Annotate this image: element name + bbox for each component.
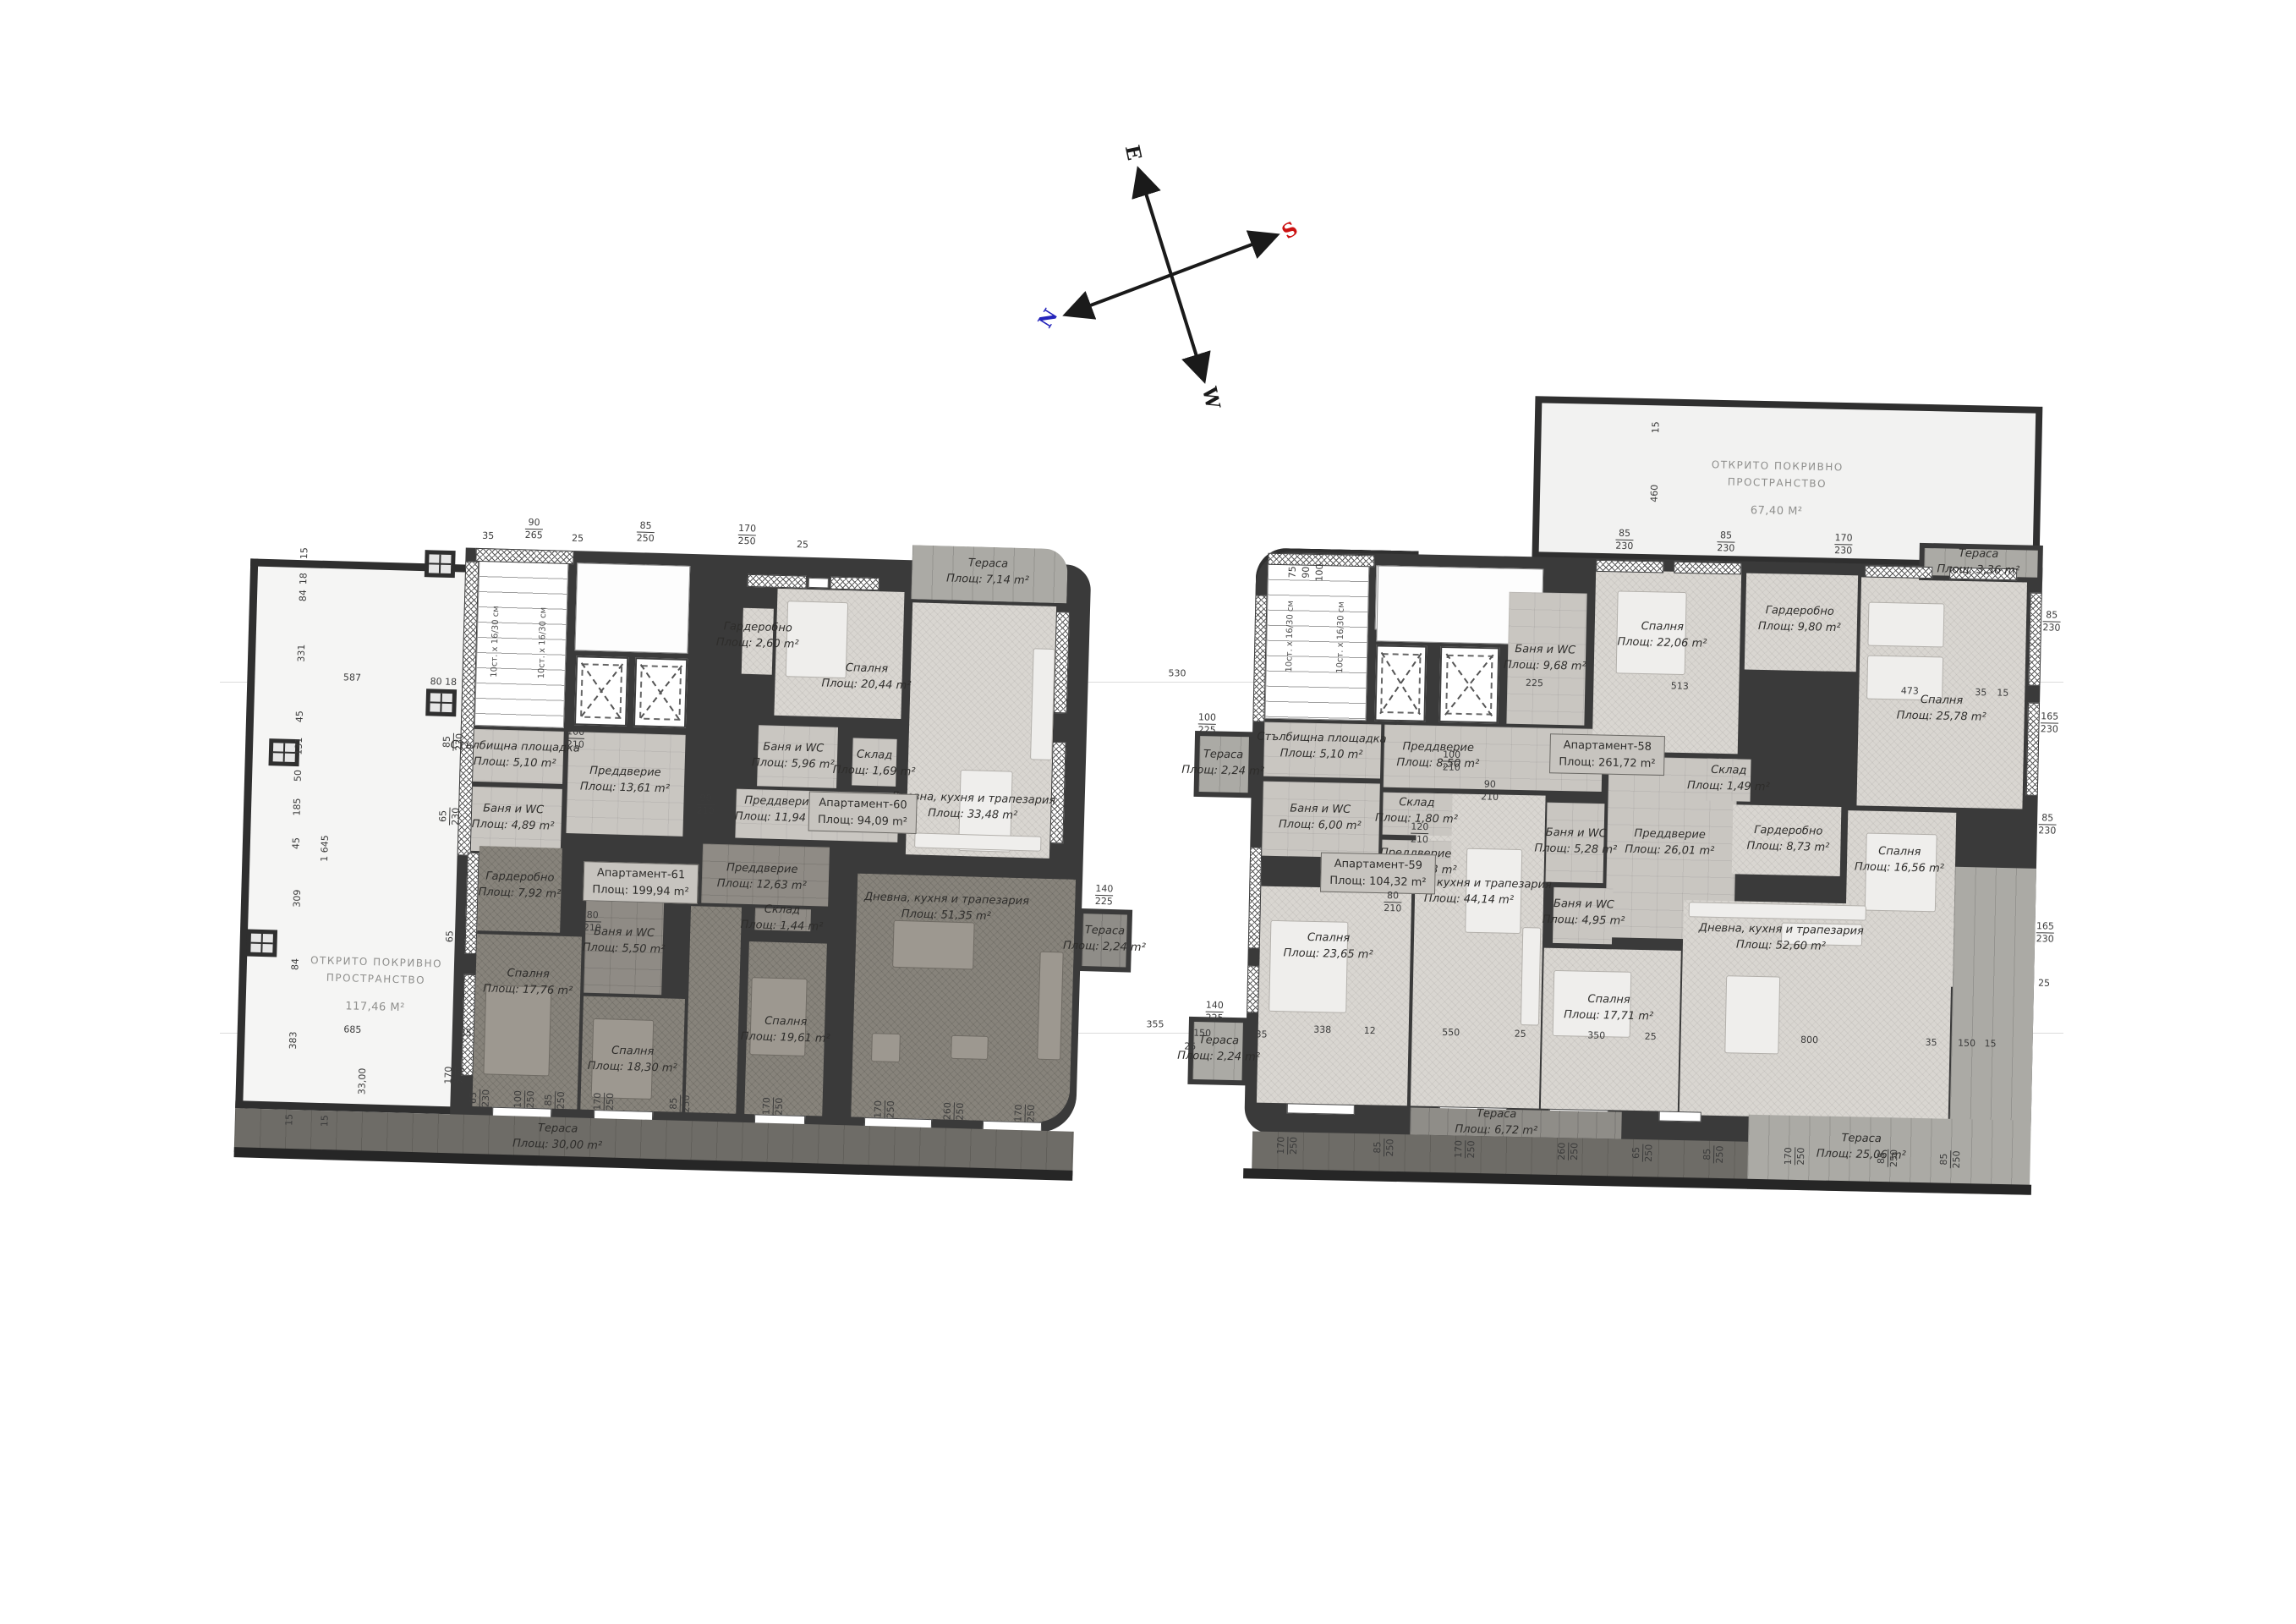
room-area: Площ: 7,14 m² bbox=[946, 571, 1029, 590]
dimension-label: 85230 bbox=[1717, 530, 1735, 554]
dimension-label: 185 bbox=[293, 798, 304, 815]
dimension-label: 170250 bbox=[1276, 1137, 1300, 1155]
room-area: Площ: 5,50 m² bbox=[582, 941, 665, 959]
dimension-bottom: 250 bbox=[1465, 1140, 1477, 1158]
dimension-top: 85 bbox=[639, 520, 651, 531]
dimension-top: 85 bbox=[1372, 1141, 1383, 1153]
dimension-label: 85230 bbox=[2042, 610, 2061, 634]
dimension-top: 80 bbox=[587, 909, 599, 920]
dimension-label: 165230 bbox=[2036, 921, 2055, 945]
dimension-bottom: 265 bbox=[525, 528, 543, 540]
dimension-label: 331 bbox=[297, 644, 308, 661]
room-label: СкладПлощ: 1,44 m² bbox=[740, 902, 824, 935]
dimension-top: 90 bbox=[528, 517, 540, 528]
room-area: Площ: 5,10 m² bbox=[1257, 745, 1387, 764]
apartment-number: Апартамент-58 bbox=[1559, 737, 1657, 755]
room-label: СпалняПлощ: 16,56 m² bbox=[1855, 843, 1945, 877]
room-area: Площ: 8,73 m² bbox=[1746, 839, 1829, 857]
insulated-wall bbox=[475, 548, 573, 564]
room-name: Склад bbox=[1687, 762, 1770, 780]
insulated-wall bbox=[2026, 703, 2040, 796]
apartment-area: Площ: 199,94 m² bbox=[592, 881, 689, 901]
room-label: ТерасаПлощ: 6,72 m² bbox=[1455, 1106, 1538, 1140]
room-label: Стълбищна площадкаПлощ: 5,10 m² bbox=[450, 738, 580, 773]
room-label: Баня и WCПлощ: 9,68 m² bbox=[1504, 642, 1587, 676]
dimension-label: 140225 bbox=[1095, 884, 1114, 908]
elevator-x-symbol bbox=[635, 659, 686, 727]
dimension-label: 84 bbox=[290, 958, 301, 970]
dimension-top: 85 bbox=[1938, 1153, 1949, 1165]
dimension-label: 85250 bbox=[1877, 1149, 1900, 1167]
dimension-label: 85250 bbox=[544, 1091, 567, 1110]
dimension-bottom: 230 bbox=[449, 808, 462, 826]
room-name: Спалня bbox=[1618, 619, 1707, 637]
room-label: Дневна, кухня и трапезарияПлощ: 52,60 m² bbox=[1698, 921, 1864, 957]
room-label: ТерасаПлощ: 2,24 m² bbox=[1181, 747, 1265, 781]
room-area: Площ: 1,44 m² bbox=[740, 918, 823, 936]
room-area: Площ: 5,96 m² bbox=[752, 755, 835, 774]
dimension-bottom: 250 bbox=[1384, 1138, 1396, 1156]
room-area: Площ: 18,30 m² bbox=[587, 1059, 677, 1078]
dimension-top: 170 bbox=[1453, 1140, 1464, 1158]
dimension-label: 12 bbox=[1364, 1026, 1376, 1037]
room-area: Площ: 6,00 m² bbox=[1279, 817, 1362, 835]
dimension-label: 35 bbox=[460, 1028, 472, 1039]
dimension-top: 85 bbox=[441, 736, 452, 748]
dimension-bottom: 230 bbox=[454, 1067, 467, 1084]
dimension-top: 85 bbox=[1619, 528, 1630, 539]
dimension-label: 15 bbox=[284, 1114, 295, 1126]
dimension-top: 85 bbox=[1720, 529, 1732, 540]
dimension-bottom: 230 bbox=[452, 733, 465, 751]
room-area: Площ: 2,24 m² bbox=[1181, 763, 1264, 781]
dimension-bottom: 210 bbox=[1481, 790, 1499, 803]
dimension-label: 85230 bbox=[2038, 813, 2057, 837]
dimension-label: 25 bbox=[797, 540, 808, 551]
window bbox=[1287, 1103, 1355, 1115]
room-name: Баня и WC bbox=[1279, 801, 1362, 819]
dimension-label: 170250 bbox=[737, 524, 756, 547]
dimension-label: 170250 bbox=[593, 1092, 616, 1111]
dimension-bottom: 210 bbox=[1384, 902, 1401, 914]
open-space-label: Открито покривно пространство117,46 m² bbox=[303, 952, 448, 1019]
dining-table bbox=[892, 920, 975, 970]
room-label: ТерасаПлощ: 3,36 m² bbox=[1937, 546, 2020, 579]
dimension-top: 170 bbox=[738, 523, 756, 535]
dimension-label: 800 bbox=[1800, 1035, 1818, 1046]
insulated-wall bbox=[1674, 562, 1741, 575]
dimension-label: 1 645 bbox=[320, 835, 332, 862]
elevator-x-symbol bbox=[1440, 648, 1498, 721]
gap-dimension-top: 530 bbox=[1169, 669, 1186, 680]
room-label: Баня и WCПлощ: 4,95 m² bbox=[1542, 897, 1625, 930]
dimension-bottom: 250 bbox=[1887, 1149, 1899, 1167]
dimension-top: 65 bbox=[1630, 1147, 1641, 1159]
open-space-area: 67,40 m² bbox=[1704, 501, 1848, 523]
room-area: Площ: 1,49 m² bbox=[1687, 778, 1770, 796]
elevator-shaft bbox=[1438, 646, 1499, 723]
apartment-number: Апартамент-59 bbox=[1330, 856, 1427, 875]
dimension-label: 170230 bbox=[1834, 533, 1853, 557]
dimension-top: 260 bbox=[1556, 1143, 1567, 1160]
room-area: Площ: 17,71 m² bbox=[1564, 1007, 1653, 1025]
room-label: Баня и WCПлощ: 4,89 m² bbox=[471, 801, 555, 835]
room-area: Площ: 12,63 m² bbox=[717, 876, 808, 895]
room-area: Площ: 2,60 m² bbox=[716, 635, 799, 654]
dimension-bottom: 250 bbox=[1568, 1143, 1581, 1160]
dimension-bottom: 210 bbox=[1443, 760, 1460, 773]
room-area: Площ: 2,24 m² bbox=[1063, 938, 1146, 957]
dimension-label: 170230 bbox=[443, 1067, 467, 1085]
elevator-shaft bbox=[574, 656, 628, 727]
room-name: Тераса bbox=[1455, 1106, 1538, 1124]
dimension-label: 90210 bbox=[697, 793, 715, 817]
open-space-name: Открито покривно пространство bbox=[1712, 458, 1844, 490]
room-name: Склад bbox=[1375, 795, 1458, 813]
room-label: СпалняПлощ: 20,44 m² bbox=[821, 660, 912, 694]
elevator-x-symbol bbox=[576, 657, 627, 725]
dimension-label: 170250 bbox=[1013, 1104, 1037, 1122]
dimension-bottom: 230 bbox=[1717, 541, 1734, 554]
dimension-bottom: 250 bbox=[1949, 1150, 1962, 1168]
dimension-bottom: 250 bbox=[772, 1097, 785, 1115]
dimension-label: 460 bbox=[1650, 485, 1661, 502]
room-label: СпалняПлощ: 19,61 m² bbox=[740, 1013, 830, 1048]
room-name: Преддверие bbox=[1397, 739, 1480, 757]
room-label: Баня и WCПлощ: 5,28 m² bbox=[1534, 826, 1618, 859]
room-area: Площ: 19,61 m² bbox=[740, 1029, 830, 1048]
insulated-wall bbox=[2028, 593, 2041, 686]
dimension-bottom: 230 bbox=[479, 1089, 491, 1107]
room-label: СпалняПлощ: 17,71 m² bbox=[1564, 991, 1654, 1025]
apartment-area: Площ: 104,32 m² bbox=[1329, 872, 1427, 891]
dimension-bottom: 210 bbox=[1411, 832, 1428, 845]
open-space-name: Открито покривно пространство bbox=[310, 954, 442, 986]
stair-flight-text: 10ст. x 16/30 см bbox=[1285, 601, 1296, 672]
room-label: СпалняПлощ: 23,65 m² bbox=[1283, 930, 1373, 963]
room-name: Тераса bbox=[1181, 747, 1264, 765]
dimension-bottom: 225 bbox=[1095, 894, 1113, 907]
room-name: Стълбищна площадка bbox=[1257, 730, 1387, 749]
dimension-label: 170250 bbox=[1454, 1140, 1477, 1159]
insulated-wall bbox=[1596, 560, 1663, 573]
compass: E S N W bbox=[1044, 148, 1298, 402]
room-label: СпалняПлощ: 25,78 m² bbox=[1896, 692, 1986, 726]
dimension-label: 45 bbox=[295, 710, 306, 722]
room-area: Площ: 25,78 m² bbox=[1896, 708, 1986, 726]
page: { "compass": { "labels": {"e": "E", "s":… bbox=[0, 0, 2296, 1624]
stair-flight-text: 10ст. x 16/30 см bbox=[490, 606, 501, 678]
dimension-bottom: 230 bbox=[1615, 539, 1633, 551]
room-area: Площ: 5,28 m² bbox=[1534, 841, 1617, 859]
dimension-top: 170 bbox=[1012, 1104, 1024, 1122]
room-label: СпалняПлощ: 17,76 m² bbox=[483, 965, 573, 1000]
dimension-top: 140 bbox=[1206, 1000, 1224, 1011]
dimension-top: 140 bbox=[1095, 883, 1113, 895]
dimension-label: 15 bbox=[1984, 1039, 1996, 1050]
dimension-label: 90210 bbox=[1481, 779, 1499, 803]
room-area: Площ: 3,36 m² bbox=[1937, 562, 2019, 579]
dimension-bottom: 230 bbox=[1834, 544, 1852, 557]
dimension-top: 65 bbox=[444, 930, 455, 942]
apartment-tag: Апартамент-59Площ: 104,32 m² bbox=[1320, 853, 1436, 895]
room-area: Площ: 23,65 m² bbox=[1283, 946, 1373, 963]
room-label: Стълбищна площадкаПлощ: 5,10 m² bbox=[1257, 730, 1387, 765]
dimension-bottom: 230 bbox=[2036, 932, 2054, 945]
elevator-shaft bbox=[1374, 645, 1427, 721]
room-name: Гардеробно bbox=[716, 619, 799, 638]
dimension-label: 75 bbox=[1288, 566, 1299, 578]
dimension-top: 170 bbox=[1834, 532, 1852, 543]
dimension-label: 260250 bbox=[942, 1102, 966, 1121]
insulated-wall bbox=[1248, 847, 1263, 948]
room-label: ПреддвериеПлощ: 13,61 m² bbox=[580, 764, 671, 798]
dimension-bottom: 250 bbox=[1287, 1137, 1300, 1155]
apartment-tag: Апартамент-60Площ: 94,09 m² bbox=[808, 791, 918, 834]
dimension-bottom: 250 bbox=[603, 1093, 616, 1111]
room-area: Площ: 13,61 m² bbox=[580, 779, 671, 798]
apartment-tag: Апартамент-58Площ: 261,72 m² bbox=[1549, 733, 1665, 776]
dimension-bottom: 210 bbox=[567, 738, 584, 750]
dimension-label: 260250 bbox=[1557, 1143, 1581, 1161]
dimension-label: 473 bbox=[1901, 686, 1919, 697]
skylight-symbol bbox=[425, 550, 456, 578]
apartment-number: Апартамент-60 bbox=[818, 795, 908, 814]
room-area: Площ: 4,95 m² bbox=[1542, 913, 1625, 930]
room-area: Площ: 9,68 m² bbox=[1504, 658, 1586, 676]
apartment-number: Апартамент-61 bbox=[593, 864, 690, 884]
room-label: СкладПлощ: 1,69 m² bbox=[832, 747, 916, 781]
dimension-bottom: 250 bbox=[636, 531, 654, 544]
dimension-top: 85 bbox=[1876, 1152, 1887, 1164]
dimension-label: 35 bbox=[1975, 688, 1986, 699]
dimension-label: 100225 bbox=[1198, 712, 1217, 736]
coffee-table bbox=[951, 1035, 989, 1060]
dimension-top: 260 bbox=[941, 1102, 953, 1120]
elevator-x-symbol bbox=[1376, 646, 1425, 720]
dimension-bottom: 250 bbox=[737, 535, 755, 547]
apartment-area: Площ: 94,09 m² bbox=[818, 811, 908, 830]
room-name: Тераса bbox=[1937, 546, 2020, 563]
room-name: Баня и WC bbox=[1535, 826, 1618, 843]
dimension-label: 85230 bbox=[441, 732, 465, 751]
room-label: ПреддвериеПлощ: 26,01 m² bbox=[1625, 826, 1715, 860]
dimension-top: 170 bbox=[442, 1067, 454, 1084]
armchair bbox=[871, 1033, 901, 1062]
dimension-label: 85250 bbox=[669, 1095, 693, 1113]
dimension-label: 170250 bbox=[762, 1097, 786, 1116]
room-label: СпалняПлощ: 18,30 m² bbox=[587, 1043, 677, 1078]
insulated-wall bbox=[1054, 612, 1070, 713]
skylight-symbol bbox=[425, 689, 457, 716]
room-label: ПреддвериеПлощ: 12,63 m² bbox=[717, 860, 808, 895]
dimension-label: 85250 bbox=[1702, 1145, 1726, 1164]
room-name: Баня и WC bbox=[1504, 642, 1586, 660]
dimension-top: 165 bbox=[2041, 710, 2058, 721]
room-label: ТерасаПлощ: 30,00 m² bbox=[512, 1121, 603, 1155]
dimension-label: 50 bbox=[293, 770, 304, 782]
dimension-label: 150 bbox=[1193, 1029, 1211, 1040]
dimension-label: 65250 bbox=[1631, 1144, 1655, 1162]
room-area: Площ: 9,80 m² bbox=[1758, 619, 1841, 637]
dimension-top: 165 bbox=[2036, 920, 2054, 931]
room-area: Площ: 22,06 m² bbox=[1617, 634, 1707, 652]
dimension-label: 35 bbox=[482, 531, 494, 542]
room-area: Площ: 4,89 m² bbox=[471, 817, 554, 836]
dimension-bottom: 225 bbox=[1198, 723, 1216, 736]
dimension-label: 100210 bbox=[1443, 749, 1461, 773]
dimension-label: 90265 bbox=[525, 518, 544, 541]
dimension-label: 15 bbox=[1651, 421, 1662, 433]
apartment-tag: Апартамент-61Площ: 199,94 m² bbox=[583, 861, 699, 904]
dimension-label: 25 bbox=[1645, 1032, 1657, 1043]
window-panes bbox=[250, 934, 273, 953]
window bbox=[1659, 1111, 1701, 1122]
dimension-bottom: 250 bbox=[1795, 1147, 1807, 1165]
dimension-top: 85 bbox=[2046, 609, 2058, 620]
dimension-label: 45 bbox=[291, 837, 302, 849]
dimension-bottom: 230 bbox=[2042, 621, 2060, 634]
dimension-label: 25 bbox=[1515, 1029, 1526, 1040]
dimension-label: 150 bbox=[1958, 1039, 1975, 1050]
window bbox=[808, 578, 829, 589]
dimension-top: 90 bbox=[1484, 778, 1496, 789]
dimension-bottom: 250 bbox=[1642, 1144, 1655, 1162]
dimension-bottom: 230 bbox=[456, 928, 469, 946]
dimension-bottom: 250 bbox=[554, 1091, 567, 1109]
dimension-top: 85 bbox=[668, 1097, 679, 1109]
dimension-bottom: 250 bbox=[523, 1090, 536, 1108]
room-name: Спалня bbox=[1284, 930, 1373, 947]
dimension-top: 90 bbox=[699, 793, 711, 804]
dimension-label: 80 18 bbox=[430, 677, 457, 689]
window-panes bbox=[429, 554, 452, 573]
room-name: Тераса bbox=[1817, 1131, 1906, 1149]
window-panes bbox=[430, 693, 452, 712]
stair-core bbox=[474, 560, 568, 728]
dimension-label: 80210 bbox=[584, 910, 602, 934]
dimension-top: 85 bbox=[1701, 1149, 1712, 1160]
dimension-top: 100 bbox=[567, 726, 584, 738]
dimension-top: 65 bbox=[437, 810, 448, 822]
dimension-bottom: 250 bbox=[953, 1102, 966, 1120]
dimension-top: 80 bbox=[1387, 890, 1399, 901]
dimension-bottom: 230 bbox=[2038, 824, 2056, 837]
dimension-label: 338 bbox=[1313, 1025, 1331, 1036]
dimension-top: 170 bbox=[873, 1100, 885, 1118]
room-name: Спалня bbox=[1855, 843, 1944, 861]
room-label: ТерасаПлощ: 7,14 m² bbox=[946, 556, 1030, 590]
room-label: ГардеробноПлощ: 7,92 m² bbox=[478, 869, 562, 903]
room-area: Площ: 30,00 m² bbox=[512, 1136, 603, 1155]
dimension-label: 131 bbox=[294, 737, 305, 754]
dimension-label: 35 bbox=[1925, 1038, 1937, 1049]
dimension-label: 65230 bbox=[438, 807, 462, 826]
insulated-wall bbox=[830, 577, 879, 591]
room-area: Площ: 20,44 m² bbox=[821, 676, 912, 694]
compass-arrows bbox=[1044, 148, 1298, 402]
elevator-lobby bbox=[574, 562, 690, 654]
dimension-bottom: 250 bbox=[679, 1095, 692, 1112]
sofa bbox=[1037, 952, 1064, 1061]
stair-core bbox=[1264, 563, 1369, 721]
floor-plan-right: Стълбищна площадкаПлощ: 5,10 m²Преддвери… bbox=[1183, 372, 2063, 1219]
dimension-bottom: 250 bbox=[884, 1100, 896, 1118]
dimension-top: 170 bbox=[592, 1092, 604, 1110]
room-area: Площ: 7,92 m² bbox=[478, 885, 561, 903]
dimension-label: 165230 bbox=[2041, 711, 2059, 735]
dimension-label: 383 bbox=[288, 1031, 299, 1049]
insulated-wall bbox=[748, 574, 807, 589]
dimension-top: 85 bbox=[543, 1094, 554, 1106]
dimension-label: 65230 bbox=[445, 928, 469, 946]
dimension-label: 15 bbox=[1997, 688, 2008, 699]
room-name: Гардеробно bbox=[1747, 823, 1830, 841]
dimension-label: 350 bbox=[1587, 1030, 1605, 1041]
terrace-strip-floor bbox=[1950, 867, 2036, 1122]
room-label: СкладПлощ: 1,49 m² bbox=[1687, 762, 1771, 796]
dimension-bottom: 225 bbox=[1205, 1011, 1223, 1023]
room-label: ТерасаПлощ: 2,24 m² bbox=[1063, 923, 1147, 957]
room-area: Площ: 6,72 m² bbox=[1455, 1122, 1537, 1139]
room-label: Дневна, кухня и трапезарияПлощ: 51,35 m² bbox=[863, 890, 1029, 926]
dimension-top: 170 bbox=[1275, 1137, 1286, 1155]
room-label: ГардеробноПлощ: 8,73 m² bbox=[1746, 823, 1830, 857]
dimension-label: 25 bbox=[2038, 979, 2050, 990]
dimension-label: 225 bbox=[1526, 678, 1543, 689]
skylight-symbol bbox=[246, 929, 277, 957]
apartment-area: Площ: 261,72 m² bbox=[1559, 754, 1656, 772]
dimension-label: 100250 bbox=[513, 1090, 537, 1109]
dimension-label: 35 bbox=[1255, 1029, 1267, 1040]
room-name: Гардеробно bbox=[1758, 603, 1841, 621]
dimension-label: 15 bbox=[299, 547, 310, 559]
dimension-label: 550 bbox=[1442, 1028, 1460, 1039]
room-area: Площ: 26,01 m² bbox=[1625, 842, 1714, 860]
dimension-bottom: 210 bbox=[584, 921, 601, 934]
room-label: ПреддвериеПлощ: 8,50 m² bbox=[1396, 739, 1480, 773]
room-area: Площ: 1,69 m² bbox=[832, 763, 915, 782]
dimension-bottom: 210 bbox=[697, 804, 715, 816]
dimension-label: 170250 bbox=[873, 1100, 896, 1119]
dimension-label: 25 bbox=[572, 534, 584, 545]
dimension-label: 90 bbox=[1301, 567, 1312, 579]
window-panes bbox=[273, 743, 296, 762]
dimension-label: 80210 bbox=[1384, 891, 1402, 914]
dimension-label: 170250 bbox=[1784, 1147, 1807, 1166]
dimension-label: 65230 bbox=[469, 1089, 492, 1107]
dimension-bottom: 250 bbox=[1024, 1105, 1037, 1122]
dimension-label: 25 bbox=[1184, 1041, 1196, 1052]
bed-single bbox=[1867, 602, 1944, 648]
dimension-top: 85 bbox=[2041, 812, 2053, 823]
room-name: Баня и WC bbox=[752, 739, 835, 758]
room-label: ГардеробноПлощ: 2,60 m² bbox=[716, 619, 800, 653]
dimension-top: 100 bbox=[512, 1090, 524, 1108]
dimension-label: 140225 bbox=[1205, 1001, 1224, 1024]
dimension-label: 100 bbox=[1315, 563, 1326, 581]
dimension-label: 85250 bbox=[1939, 1150, 1963, 1169]
dimension-label: 513 bbox=[1671, 681, 1689, 692]
elevator-shaft bbox=[633, 657, 688, 728]
room-name: Спалня bbox=[1564, 991, 1653, 1009]
stair-flight-text: 10ст. x 16/30 см bbox=[1335, 601, 1346, 673]
corridor-floor-dark bbox=[685, 906, 742, 1114]
dimension-top: 170 bbox=[761, 1097, 773, 1115]
dimension-bottom: 230 bbox=[2041, 722, 2058, 735]
room-area: Площ: 16,56 m² bbox=[1855, 859, 1944, 877]
open-space-area: 117,46 m² bbox=[303, 996, 447, 1019]
